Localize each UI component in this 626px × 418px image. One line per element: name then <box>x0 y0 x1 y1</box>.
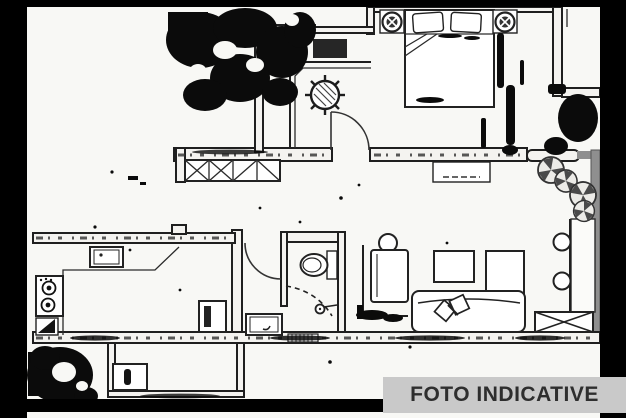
coffee-table-icon <box>434 251 474 282</box>
fridge-icon <box>199 301 226 332</box>
bathroom-sink-icon <box>246 314 282 335</box>
banner-label: FOTO INDICATIVE <box>410 383 599 407</box>
shelf-icon <box>433 162 490 182</box>
console-table-icon <box>571 219 595 312</box>
sofa-with-pillows-icon <box>412 291 525 332</box>
corner-cabinet-icon <box>36 318 58 335</box>
double-bed-icon <box>405 10 494 107</box>
wardrobe-x-hatch-icon <box>185 160 280 181</box>
floor-plan-page: FOTO INDICATIVE <box>0 0 626 418</box>
floor-plan <box>0 0 626 418</box>
toilet-icon <box>301 251 338 279</box>
storage-x-box-icon <box>535 312 593 332</box>
round-chair-icon <box>554 273 571 290</box>
balcony-unit-icon <box>113 364 147 390</box>
kitchen-sink-icon <box>90 247 123 267</box>
nightstand-lamp-icon <box>496 13 515 32</box>
plant-icon <box>305 75 345 115</box>
indicative-photo-banner: FOTO INDICATIVE <box>383 377 626 413</box>
stove-burners-icon <box>36 276 63 316</box>
pillow-icon <box>450 12 481 33</box>
pillow-icon <box>412 12 443 33</box>
round-chair-icon <box>554 234 571 251</box>
nightstand-lamp-icon <box>383 13 402 32</box>
